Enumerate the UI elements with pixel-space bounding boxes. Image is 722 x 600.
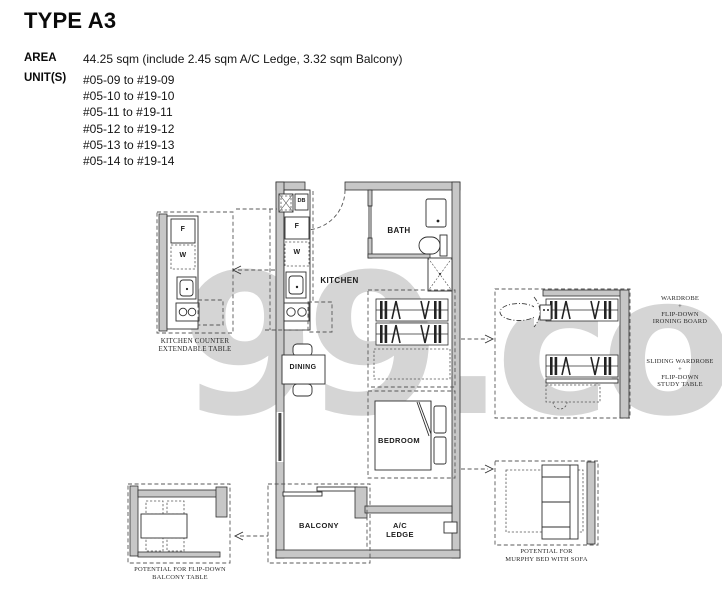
kitchen-counter-caption: KITCHEN COUNTER EXTENDABLE TABLE	[145, 337, 245, 354]
pillow-icon	[434, 406, 446, 433]
bedroom-label: BEDROOM	[369, 436, 429, 445]
washer-label: W	[171, 252, 195, 259]
bath	[368, 190, 452, 291]
sliding-door-panel	[317, 487, 357, 491]
entry-door-swing	[305, 190, 345, 230]
stool-icon	[293, 344, 312, 356]
bedroom	[368, 391, 455, 478]
dining-label: DINING	[282, 364, 324, 371]
murphy-bed-inset	[495, 461, 598, 545]
bath-sink-icon	[426, 199, 446, 227]
toilet-tank	[440, 235, 447, 256]
sliding-door-panel	[283, 492, 322, 496]
chair-outline	[146, 538, 163, 551]
floorplan-page: TYPE A3 AREA 44.25 sqm (include 2.45 sqm…	[0, 0, 722, 600]
pillow-icon	[434, 437, 446, 464]
hob-icon	[284, 303, 309, 321]
study-table-outline	[546, 385, 600, 402]
iron-mount	[540, 305, 551, 320]
extendable-table-outline	[308, 302, 332, 332]
extended-table-outline	[198, 300, 223, 325]
kitchen-label: KITCHEN	[312, 276, 367, 285]
balcony-label: BALCONY	[294, 521, 344, 530]
toilet-icon	[419, 237, 440, 254]
balcony-table-caption: POTENTIAL FOR FLIP-DOWN BALCONY TABLE	[118, 566, 242, 582]
stool-outline	[553, 402, 567, 409]
ac-ledge	[365, 490, 452, 550]
kitchen-counter-inset	[157, 212, 233, 333]
bath-label: BATH	[374, 226, 424, 235]
balcony-table-inset	[128, 484, 230, 563]
ac-ledge-label: A/C LEDGE	[375, 522, 425, 539]
main-unit	[236, 182, 460, 563]
table-icon	[141, 514, 187, 538]
chair-outline	[167, 501, 184, 514]
washer-label: W	[285, 249, 309, 256]
stool-icon	[293, 384, 312, 396]
kitchen-counter	[279, 190, 310, 330]
wardrobe-inset	[495, 289, 630, 418]
wardrobe-ironing-caption: WARDROBE + FLIP-DOWN IRONING BOARD	[638, 295, 722, 326]
arrow-right-icon	[485, 335, 493, 343]
sliding-wardrobe-caption: SLIDING WARDROBE + FLIP-DOWN STUDY TABLE	[638, 358, 722, 389]
arrow-right-icon	[485, 465, 493, 473]
murphy-bed-caption: POTENTIAL FOR MURPHY BED WITH SOFA	[489, 548, 604, 564]
fridge-label: F	[285, 223, 309, 230]
floorplan-svg	[0, 0, 722, 600]
chair-outline	[146, 501, 163, 514]
db-label: DB	[295, 198, 308, 204]
wardrobe	[368, 290, 455, 387]
fridge-label: F	[171, 226, 195, 233]
ironing-board-icon	[500, 304, 538, 321]
chair-outline	[167, 538, 184, 551]
